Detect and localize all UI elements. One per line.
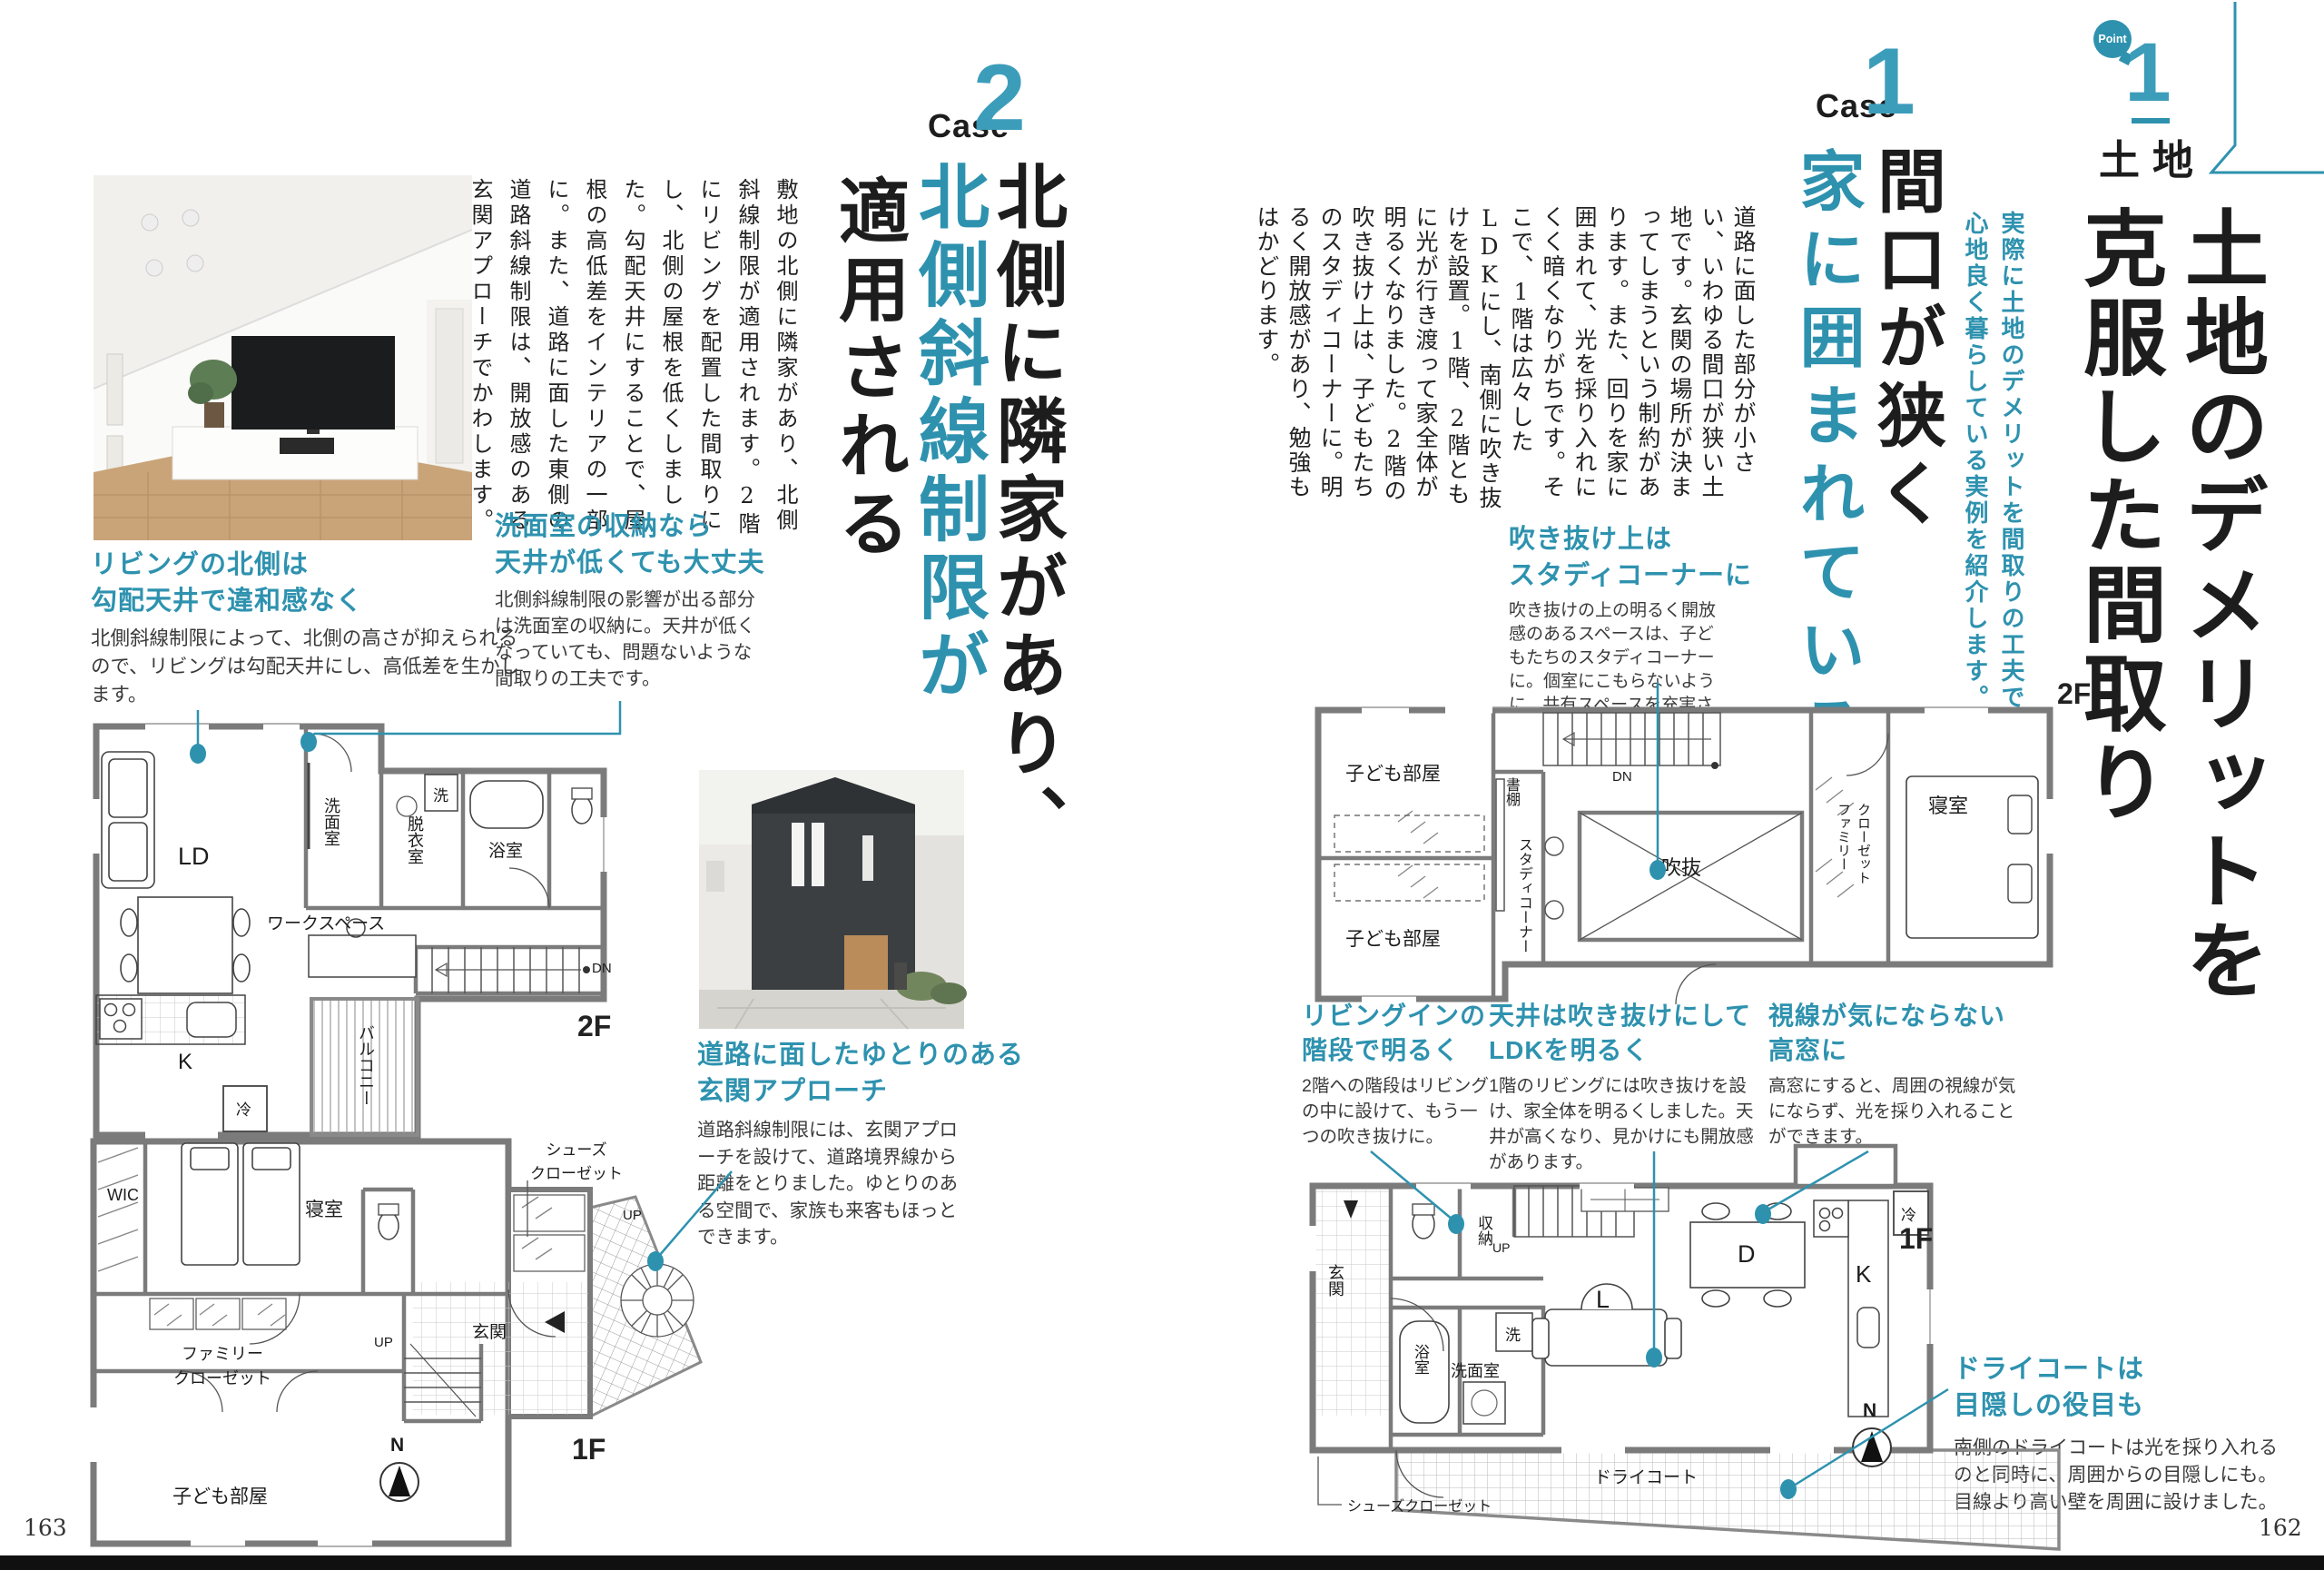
room-ld: LD: [178, 843, 210, 871]
label-up2-l: UP: [374, 1335, 393, 1350]
floor-label-r1f: 1F: [1899, 1222, 1933, 1256]
room-study: スタディコーナー: [1512, 837, 1534, 953]
label-shoes-r: シューズクローゼット: [1347, 1494, 1492, 1516]
label-dn-l2f: DN: [592, 961, 612, 976]
label-up1-l: UP: [623, 1208, 642, 1223]
compass-label-r: N: [1863, 1400, 1876, 1422]
case2-title-black2: 適用される: [817, 174, 919, 565]
callout-lavatory-caption: 北側斜線制限の影響が出る部分は洗面室の収納に。天井が低くなっていても、問題ないよ…: [495, 587, 767, 692]
point-number: 1: [2119, 31, 2177, 114]
point-category: 土地: [2099, 127, 2206, 186]
callout-lavatory-h1: 洗面室の収納なら: [495, 509, 765, 545]
callout-approach-caption: 道路斜線制限には、玄関アプローチを設けて、道路境界線から距離をとりました。ゆとり…: [697, 1117, 970, 1251]
left-2f-plan: [82, 699, 726, 1153]
room-lavatory-l: 洗面室: [320, 797, 343, 846]
callout-living-h2: 勾配天井で違和感なく: [91, 583, 363, 619]
point-badge: Point 1 土地: [2079, 0, 2324, 182]
room-dining: D: [1738, 1240, 1756, 1269]
room-kids-bottom: 子ども部屋: [1345, 924, 1441, 952]
floor-label-l1f: 1F: [572, 1433, 606, 1466]
callout-stair-h2: 階段で明るく: [1302, 1033, 1486, 1068]
sofa-left: [102, 752, 154, 888]
case1-body: 道路に面した部分が小さい、いわゆる間口が狭い土地です。玄関の場所が決まってしまう…: [1315, 205, 1759, 518]
floor-label-l2f: 2F: [577, 1010, 611, 1043]
compass-left: [380, 1463, 419, 1501]
room-kitchen-l: K: [178, 1050, 192, 1075]
callout-void-heading: 吹き抜け上は スタディコーナーに: [1509, 521, 1752, 594]
label-shoes-l1: シューズ: [508, 1139, 645, 1162]
point-number-underline: [2132, 118, 2170, 123]
room-bedroom-l: 寝室: [305, 1195, 343, 1222]
room-bath-r: 浴室: [1409, 1344, 1432, 1375]
callout-void-h2: スタディコーナーに: [1509, 558, 1752, 594]
room-bedroom-r: 寝室: [1928, 790, 1968, 819]
label-up-r: UP: [1492, 1240, 1510, 1255]
floor-label-r2f: 2F: [2057, 677, 2091, 711]
living-room-photo: [94, 175, 472, 540]
book-spread: { "accent_color": "#2e92af", "right": { …: [0, 0, 2324, 1570]
room-balcony: バルコニー: [354, 1024, 378, 1106]
room-living: L: [1596, 1286, 1610, 1314]
room-entrance-r: 玄関: [1324, 1264, 1347, 1297]
callout-void-h1: 吹き抜け上は: [1509, 521, 1752, 558]
room-fridge-l: 冷: [236, 1097, 251, 1120]
callout-living-h1: リビングの北側は: [91, 547, 363, 583]
room-fcloset-l1: ファミリー: [145, 1342, 300, 1367]
compass-label-l: N: [390, 1435, 404, 1456]
case2-body: 敷地の北側に隣家があり、北側斜線制限が適用されます。2階にリビングを配置した間取…: [459, 178, 804, 541]
room-fcloset2: クローゼット: [1854, 803, 1873, 884]
callout-approach-h1: 道路に面したゆとりのある: [697, 1037, 1024, 1073]
approach-plant: [621, 1264, 694, 1337]
callout-approach-heading: 道路に面したゆとりのある 玄関アプローチ: [697, 1037, 1024, 1110]
bed: [1906, 776, 2038, 938]
room-kitchen-r: K: [1856, 1260, 1871, 1289]
callout-lavatory-h2: 天井が低くても大丈夫: [495, 545, 765, 581]
kitchen-left: [96, 995, 245, 1044]
room-kids-l: 子ども部屋: [172, 1482, 268, 1509]
callout-living-caption: 北側斜線制限によって、北側の高さが抑えられるので、リビングは勾配天井にし、高低差…: [91, 625, 525, 709]
room-shelf: 書棚: [1500, 777, 1521, 806]
lead-line2: 心地良く暮らしている実例を紹介します。: [1959, 211, 1993, 711]
case2-number: 2: [973, 51, 1026, 145]
page-number-right: 162: [2259, 1515, 2302, 1541]
page-number-left: 163: [24, 1515, 67, 1541]
room-kids-top: 子ども部屋: [1345, 759, 1441, 786]
main-title-line1: 土地のデメリットを: [2175, 205, 2264, 1006]
callout-ceiling-h2: LDKを明るく: [1489, 1033, 1751, 1068]
callout-living-heading: リビングの北側は 勾配天井で違和感なく: [91, 547, 363, 619]
room-bath-l: 浴室: [488, 837, 523, 862]
room-void: 吹抜: [1661, 852, 1701, 881]
compass-right: [1853, 1428, 1891, 1466]
room-dressing: 脱衣室: [403, 815, 427, 864]
callout-approach-h2: 玄関アプローチ: [697, 1073, 1024, 1110]
callout-window-h2: 高窓に: [1768, 1033, 2005, 1068]
house-exterior-photo: [699, 770, 964, 1029]
room-lavatory-r: 洗面室: [1451, 1358, 1500, 1382]
label-shoes-l2: クローゼット: [508, 1162, 645, 1186]
room-workspace: ワークスペース: [267, 910, 385, 934]
label-dn-r2f: DN: [1612, 769, 1632, 785]
callout-lavatory-heading: 洗面室の収納なら 天井が低くても大丈夫: [495, 509, 765, 581]
room-fcloset-l2: クローゼット: [145, 1367, 300, 1391]
room-entrance-l: 玄関: [472, 1318, 507, 1343]
right-2f-plan: [1307, 674, 2106, 1019]
room-wash-l: 洗: [433, 783, 448, 805]
room-wic: WIC: [107, 1186, 139, 1205]
label-shoes-l: シューズ クローゼット: [508, 1139, 645, 1186]
room-fcloset-l: ファミリー クローゼット: [145, 1342, 300, 1391]
room-drycourt: ドライコート: [1594, 1464, 1698, 1488]
dining-set-left: [121, 897, 250, 993]
room-wash-r: 洗: [1505, 1322, 1521, 1345]
case1-number: 1: [1863, 35, 1915, 129]
room-fcloset1: ファミリー: [1834, 803, 1853, 871]
